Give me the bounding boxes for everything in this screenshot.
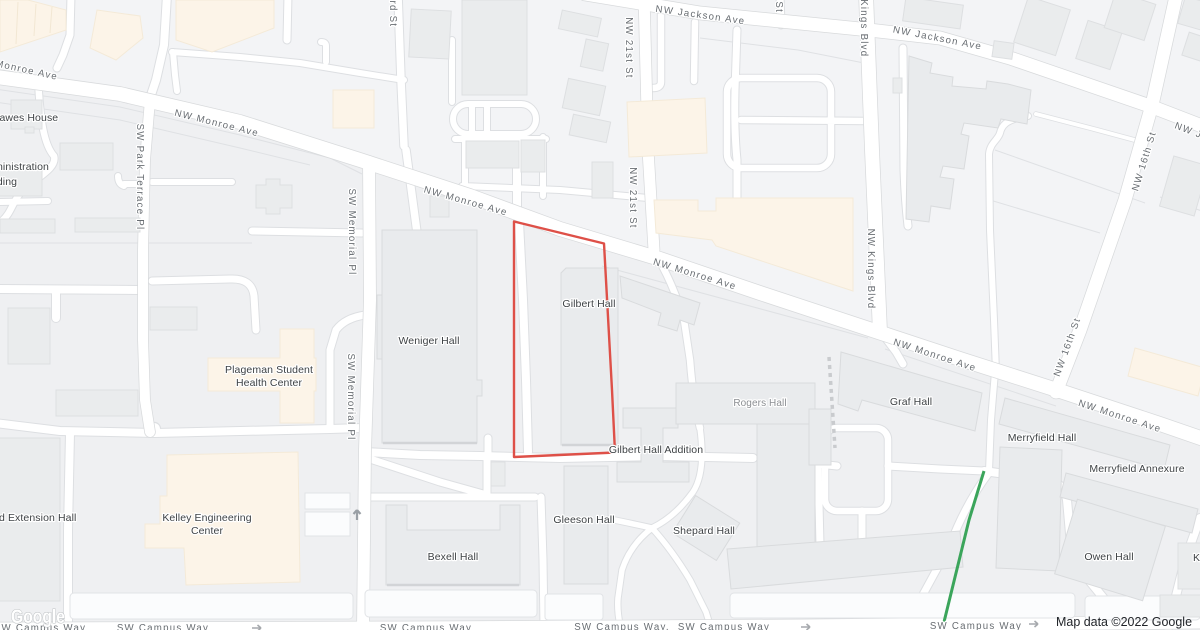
svg-text:Google: Google bbox=[11, 606, 65, 628]
svg-text:Dawes House: Dawes House bbox=[0, 112, 58, 124]
svg-text:SW Campus Way,: SW Campus Way, bbox=[574, 622, 670, 630]
svg-text:Gilbert Hall Addition: Gilbert Hall Addition bbox=[609, 444, 703, 456]
svg-text:Center: Center bbox=[191, 525, 224, 537]
svg-text:Plageman Student: Plageman Student bbox=[225, 364, 313, 376]
svg-text:Bexell Hall: Bexell Hall bbox=[428, 551, 479, 563]
svg-text:SW Park Terrace Pl: SW Park Terrace Pl bbox=[134, 124, 145, 231]
svg-text:NW 23rd St: NW 23rd St bbox=[387, 0, 398, 27]
svg-text:Kelley Engineering: Kelley Engineering bbox=[162, 512, 251, 524]
svg-text:Map data ©2022 Google: Map data ©2022 Google bbox=[1056, 615, 1192, 629]
svg-text:NW 15th St: NW 15th St bbox=[773, 0, 784, 13]
svg-text:SW Memorial Pl: SW Memorial Pl bbox=[345, 354, 356, 441]
svg-text:NW Kings Blvd: NW Kings Blvd bbox=[858, 0, 869, 57]
svg-text:NW Kings Blvd: NW Kings Blvd bbox=[865, 229, 876, 310]
svg-text:Administration: Administration bbox=[0, 161, 49, 173]
svg-text:SW Campus Way: SW Campus Way bbox=[930, 621, 1022, 630]
svg-text:Merryfield Hall: Merryfield Hall bbox=[1008, 432, 1077, 444]
svg-text:Gleeson Hall: Gleeson Hall bbox=[553, 514, 614, 526]
svg-text:NW 21st St: NW 21st St bbox=[627, 167, 638, 229]
svg-text:Shepard Hall: Shepard Hall bbox=[673, 525, 735, 537]
svg-text:Ke: Ke bbox=[1193, 552, 1200, 564]
svg-text:Graf Hall: Graf Hall bbox=[890, 396, 932, 408]
svg-text:NW 21st St: NW 21st St bbox=[623, 17, 634, 79]
svg-text:d Extension Hall: d Extension Hall bbox=[0, 512, 76, 524]
svg-text:SW Campus Way: SW Campus Way bbox=[117, 623, 209, 630]
svg-text:SW Campus Way: SW Campus Way bbox=[380, 623, 472, 630]
svg-text:SW Memorial Pl: SW Memorial Pl bbox=[346, 189, 357, 276]
svg-text:Owen Hall: Owen Hall bbox=[1084, 551, 1133, 563]
svg-text:Health Center: Health Center bbox=[236, 377, 302, 389]
svg-text:SW Campus Way: SW Campus Way bbox=[678, 622, 770, 630]
svg-text:Weniger Hall: Weniger Hall bbox=[398, 335, 459, 347]
svg-text:Rogers Hall: Rogers Hall bbox=[733, 398, 786, 409]
svg-text:Gilbert Hall: Gilbert Hall bbox=[562, 298, 615, 310]
svg-text:Building: Building bbox=[0, 176, 17, 188]
svg-text:Merryfield Annexure: Merryfield Annexure bbox=[1089, 463, 1184, 475]
